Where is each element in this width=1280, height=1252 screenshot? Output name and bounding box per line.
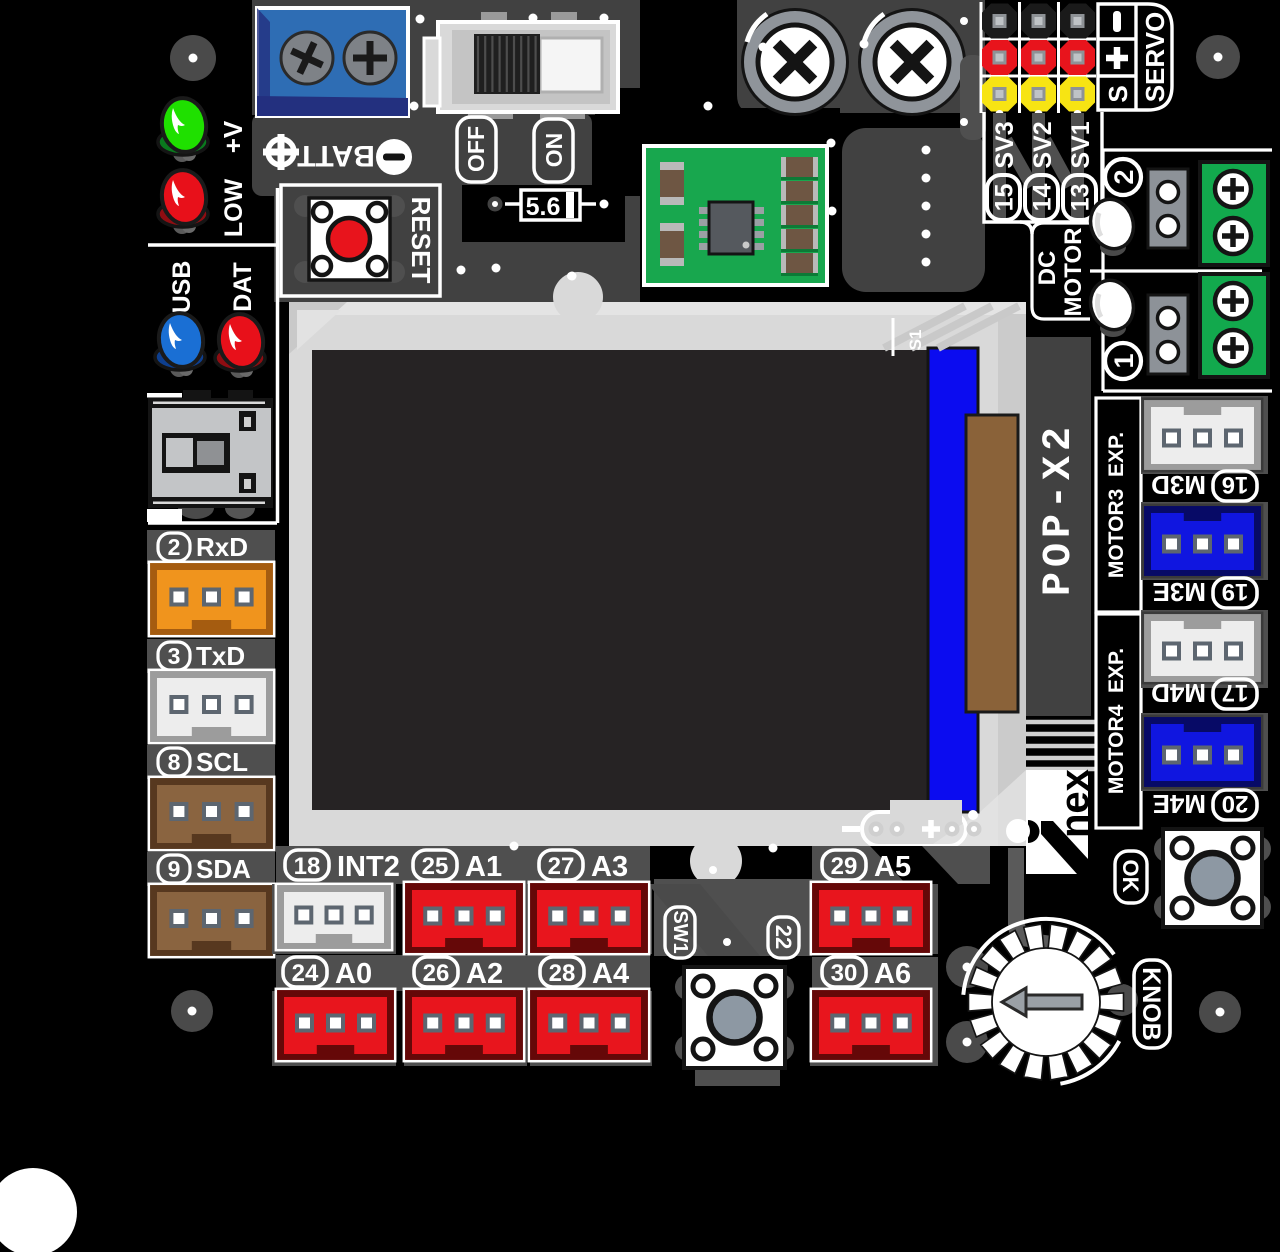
svg-text:SDA: SDA bbox=[196, 854, 251, 884]
svg-text:8: 8 bbox=[168, 749, 181, 775]
svg-text:SV2: SV2 bbox=[1029, 121, 1057, 168]
svg-text:1: 1 bbox=[1109, 353, 1139, 368]
svg-text:OK: OK bbox=[1118, 860, 1143, 893]
svg-text:TxD: TxD bbox=[196, 641, 245, 671]
svg-text:S1: S1 bbox=[906, 330, 925, 351]
svg-text:9: 9 bbox=[168, 856, 181, 882]
svg-text:A4: A4 bbox=[592, 958, 629, 990]
svg-text:A6: A6 bbox=[874, 958, 911, 990]
svg-text:SERVO: SERVO bbox=[1140, 12, 1170, 103]
svg-text:A0: A0 bbox=[335, 958, 372, 990]
svg-text:S: S bbox=[1103, 85, 1133, 102]
svg-text:INT2: INT2 bbox=[337, 851, 400, 883]
svg-text:LOW: LOW bbox=[220, 178, 248, 237]
svg-text:26: 26 bbox=[423, 960, 450, 987]
svg-text:24: 24 bbox=[292, 960, 319, 987]
svg-text:5.6: 5.6 bbox=[526, 193, 561, 221]
svg-text:19: 19 bbox=[1222, 578, 1249, 605]
svg-text:3: 3 bbox=[168, 643, 181, 669]
svg-text:29: 29 bbox=[831, 853, 858, 880]
svg-text:RxD: RxD bbox=[196, 532, 248, 562]
svg-text:USB: USB bbox=[168, 261, 196, 314]
svg-text:ON: ON bbox=[541, 133, 567, 168]
svg-text:14: 14 bbox=[1029, 184, 1057, 212]
svg-text:BATT: BATT bbox=[297, 139, 375, 172]
svg-text:MOTOR: MOTOR bbox=[1060, 228, 1087, 317]
svg-text:SW1: SW1 bbox=[669, 910, 691, 953]
svg-text:M4E: M4E bbox=[1153, 789, 1206, 819]
svg-text:nex: nex bbox=[1053, 769, 1097, 838]
svg-text:A3: A3 bbox=[591, 851, 628, 883]
svg-text:M3E: M3E bbox=[1153, 577, 1206, 607]
svg-text:22: 22 bbox=[771, 925, 796, 949]
svg-text:13: 13 bbox=[1067, 184, 1095, 212]
svg-text:2: 2 bbox=[168, 534, 181, 560]
svg-text:SV1: SV1 bbox=[1067, 121, 1095, 168]
svg-text:SV3: SV3 bbox=[991, 121, 1019, 168]
svg-text:25: 25 bbox=[422, 853, 449, 880]
svg-text:28: 28 bbox=[549, 960, 576, 987]
svg-text:18: 18 bbox=[294, 853, 321, 880]
svg-text:M4D: M4D bbox=[1151, 678, 1206, 708]
svg-text:A5: A5 bbox=[874, 851, 911, 883]
svg-text:+V: +V bbox=[218, 120, 248, 153]
svg-text:30: 30 bbox=[831, 960, 858, 987]
svg-text:20: 20 bbox=[1222, 790, 1249, 817]
svg-text:A2: A2 bbox=[466, 958, 503, 990]
svg-text:OFF: OFF bbox=[463, 126, 489, 172]
svg-text:RESET: RESET bbox=[406, 197, 436, 284]
svg-text:M3D: M3D bbox=[1151, 470, 1206, 500]
svg-text:MOTOR3 EXP.: MOTOR3 EXP. bbox=[1105, 432, 1128, 578]
svg-text:17: 17 bbox=[1222, 679, 1249, 706]
svg-text:POP-X2: POP-X2 bbox=[1037, 422, 1082, 596]
svg-text:DAT: DAT bbox=[229, 262, 257, 312]
svg-text:15: 15 bbox=[991, 184, 1019, 212]
svg-text:A1: A1 bbox=[465, 851, 502, 883]
svg-text:2: 2 bbox=[1109, 169, 1139, 184]
svg-text:27: 27 bbox=[548, 853, 575, 880]
svg-text:KNOB: KNOB bbox=[1137, 967, 1165, 1041]
svg-text:MOTOR4 EXP.: MOTOR4 EXP. bbox=[1105, 648, 1128, 794]
svg-text:SCL: SCL bbox=[196, 747, 248, 777]
svg-text:DC: DC bbox=[1034, 251, 1061, 286]
svg-text:16: 16 bbox=[1222, 471, 1249, 498]
